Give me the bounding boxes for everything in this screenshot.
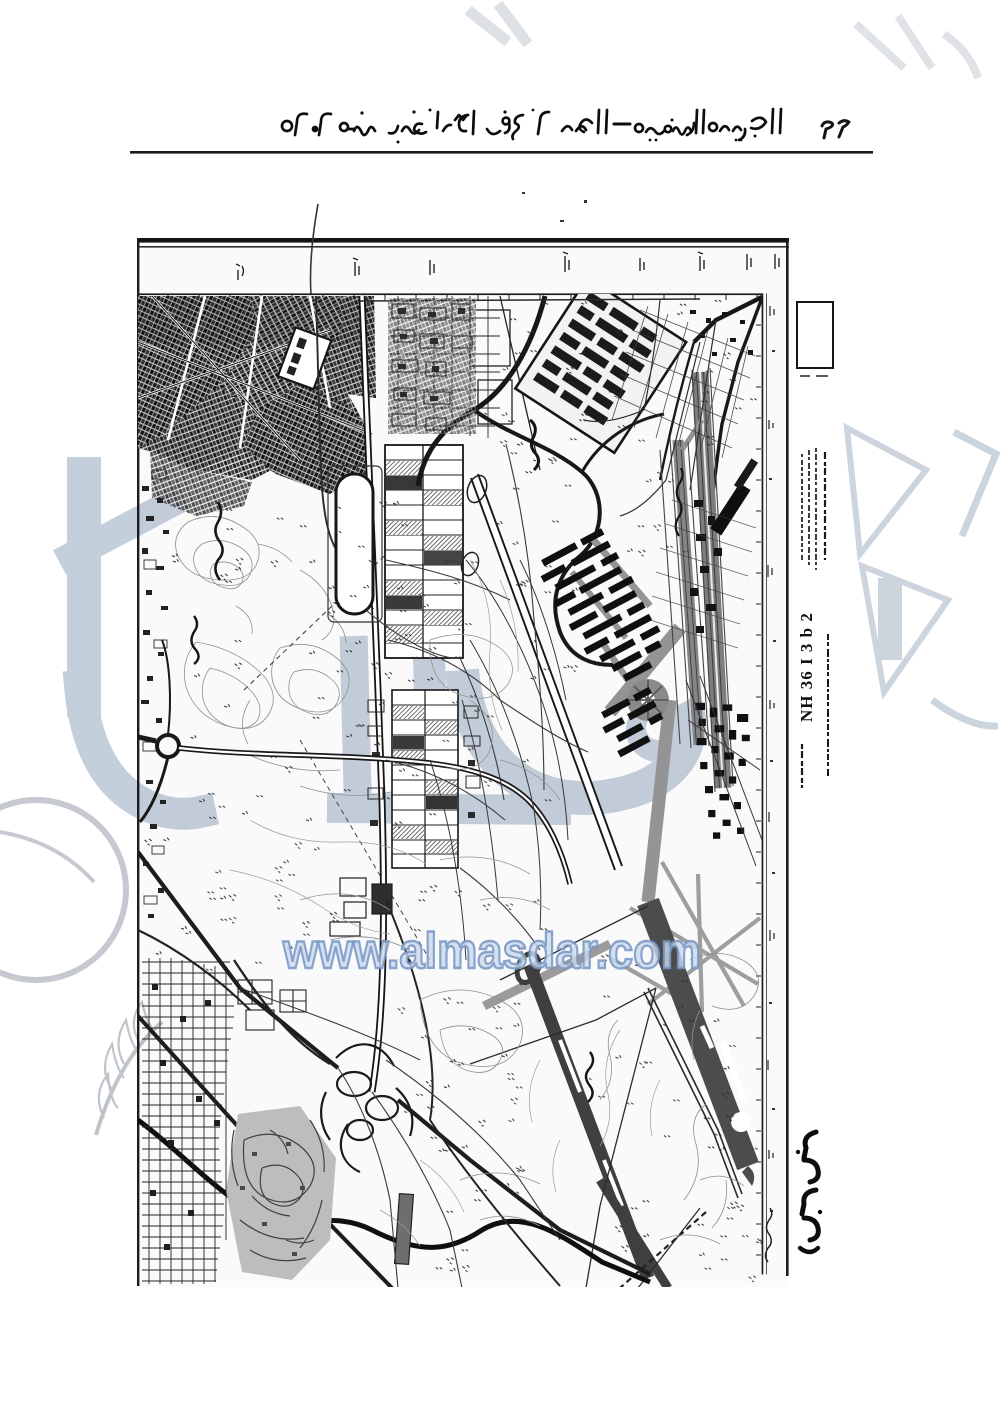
- svg-text:NH 36 I 3 b 2: NH 36 I 3 b 2: [797, 612, 816, 722]
- svg-text:www.almasdar.com: www.almasdar.com: [282, 923, 701, 979]
